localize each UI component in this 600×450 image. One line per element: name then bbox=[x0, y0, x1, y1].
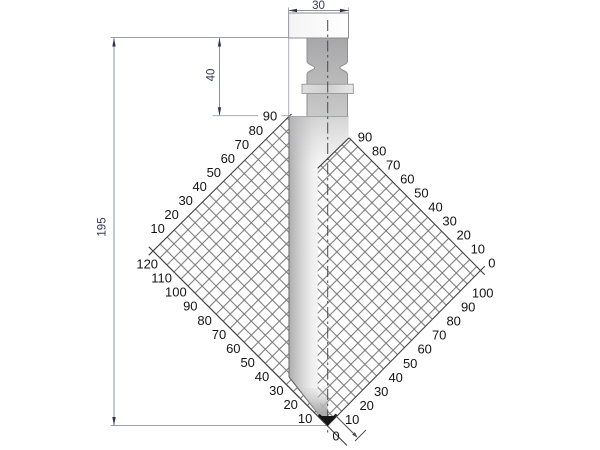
svg-text:120: 120 bbox=[136, 257, 158, 272]
svg-text:70: 70 bbox=[212, 327, 226, 342]
svg-text:40: 40 bbox=[192, 179, 206, 194]
svg-text:80: 80 bbox=[249, 123, 263, 138]
svg-text:80: 80 bbox=[446, 314, 460, 329]
svg-text:40: 40 bbox=[206, 69, 218, 82]
svg-text:30: 30 bbox=[178, 193, 192, 208]
svg-text:70: 70 bbox=[432, 328, 446, 343]
svg-text:40: 40 bbox=[428, 200, 442, 215]
svg-text:90: 90 bbox=[183, 299, 197, 314]
svg-text:60: 60 bbox=[226, 341, 240, 356]
svg-text:80: 80 bbox=[372, 144, 386, 159]
svg-text:10: 10 bbox=[345, 412, 359, 427]
svg-text:20: 20 bbox=[283, 397, 297, 412]
svg-text:20: 20 bbox=[359, 398, 373, 413]
svg-text:20: 20 bbox=[456, 228, 470, 243]
svg-text:80: 80 bbox=[197, 313, 211, 328]
svg-text:50: 50 bbox=[207, 165, 221, 180]
svg-text:30: 30 bbox=[312, 0, 325, 12]
svg-text:90: 90 bbox=[461, 299, 475, 314]
svg-text:70: 70 bbox=[386, 158, 400, 173]
svg-text:110: 110 bbox=[151, 271, 172, 286]
svg-text:40: 40 bbox=[388, 370, 402, 385]
svg-text:10: 10 bbox=[471, 242, 485, 257]
svg-text:60: 60 bbox=[417, 342, 431, 357]
svg-text:40: 40 bbox=[255, 369, 269, 384]
svg-text:0: 0 bbox=[332, 428, 339, 443]
svg-text:0: 0 bbox=[488, 256, 495, 271]
svg-text:50: 50 bbox=[414, 186, 428, 201]
svg-text:30: 30 bbox=[374, 384, 388, 399]
svg-text:10: 10 bbox=[298, 411, 312, 426]
svg-text:10: 10 bbox=[150, 221, 164, 236]
svg-text:100: 100 bbox=[472, 285, 494, 300]
svg-text:90: 90 bbox=[263, 109, 277, 124]
svg-text:195: 195 bbox=[97, 217, 109, 236]
svg-text:30: 30 bbox=[442, 214, 456, 229]
svg-text:90: 90 bbox=[358, 130, 372, 145]
svg-text:100: 100 bbox=[165, 285, 187, 300]
svg-text:20: 20 bbox=[164, 207, 178, 222]
svg-text:70: 70 bbox=[235, 137, 249, 152]
svg-text:50: 50 bbox=[403, 356, 417, 371]
svg-text:60: 60 bbox=[221, 151, 235, 166]
svg-text:30: 30 bbox=[269, 383, 283, 398]
svg-text:60: 60 bbox=[400, 172, 414, 187]
svg-text:50: 50 bbox=[240, 355, 254, 370]
